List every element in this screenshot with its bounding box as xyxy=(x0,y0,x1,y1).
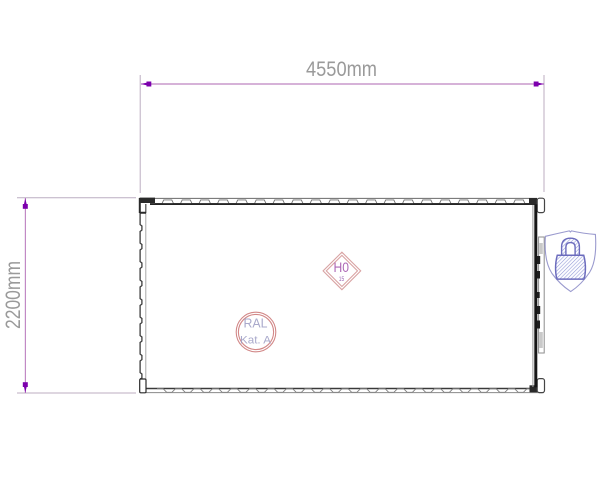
svg-text:15: 15 xyxy=(339,276,345,283)
svg-text:4550mm: 4550mm xyxy=(306,58,377,81)
svg-text:2200mm: 2200mm xyxy=(2,261,25,329)
svg-text:Kat. A: Kat. A xyxy=(240,335,272,347)
svg-text:H0: H0 xyxy=(334,259,350,275)
svg-text:RAL: RAL xyxy=(244,316,268,331)
